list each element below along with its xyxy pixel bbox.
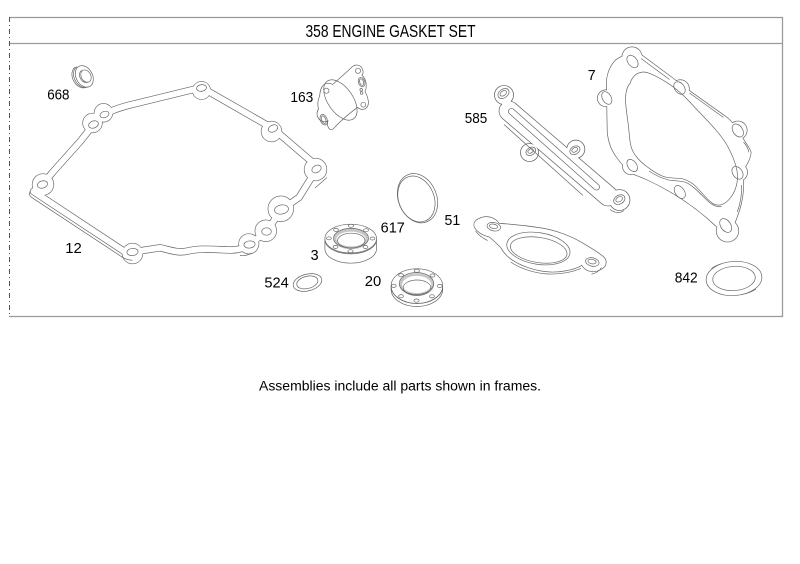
svg-text:358 ENGINE GASKET SET: 358 ENGINE GASKET SET (306, 21, 476, 41)
svg-text:Assemblies include all parts s: Assemblies include all parts shown in fr… (259, 379, 541, 395)
svg-text:7: 7 (588, 68, 596, 84)
svg-text:20: 20 (365, 274, 381, 290)
svg-text:842: 842 (675, 270, 698, 286)
svg-text:3: 3 (311, 248, 319, 264)
svg-text:12: 12 (65, 241, 82, 257)
svg-text:668: 668 (47, 88, 69, 104)
svg-text:585: 585 (465, 111, 488, 127)
svg-text:617: 617 (381, 220, 405, 236)
svg-text:524: 524 (264, 275, 288, 291)
svg-text:51: 51 (445, 213, 461, 229)
svg-text:163: 163 (290, 90, 313, 106)
